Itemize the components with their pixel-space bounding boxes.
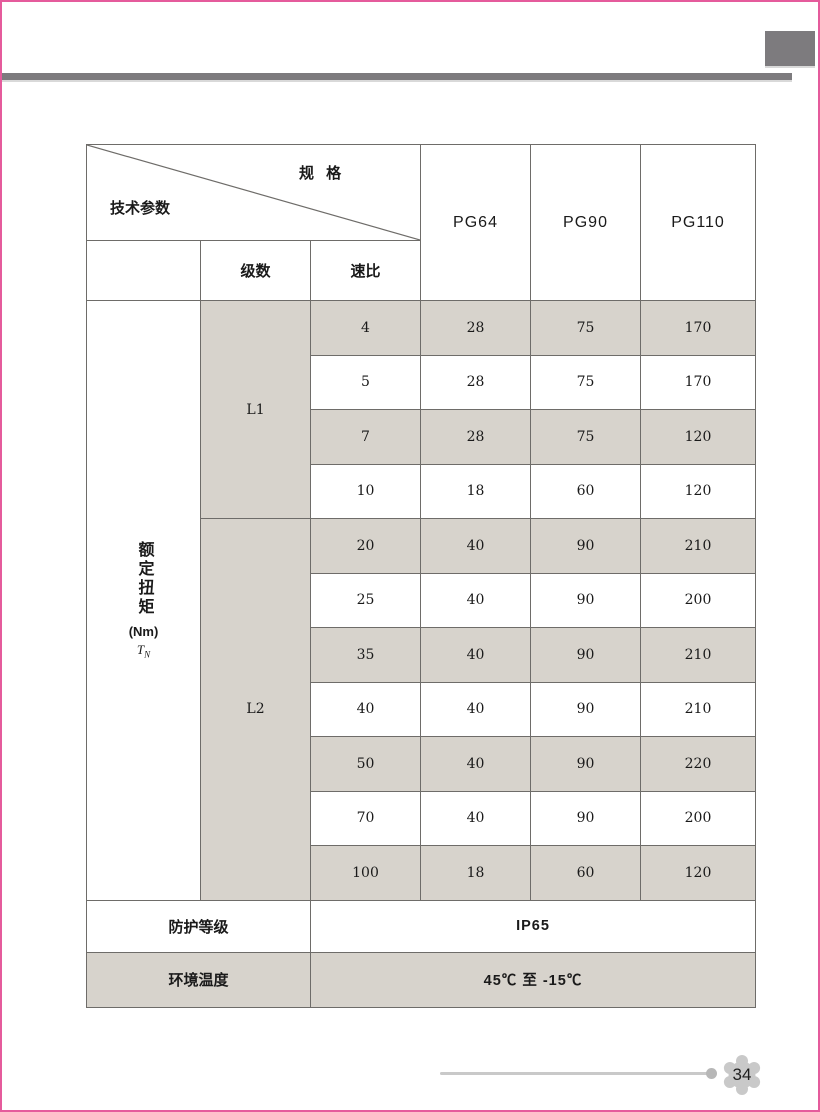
col-header-pg64: PG64 [421, 145, 531, 301]
torque-symbol: TN [87, 642, 200, 660]
header-row-1: 规 格 技术参数 PG64 PG90 PG110 [87, 145, 756, 241]
header-corner-block [765, 31, 815, 68]
cell-pg110: 200 [641, 791, 756, 846]
spec-table: 规 格 技术参数 PG64 PG90 PG110 级数 速比 额定扭矩 (Nm)… [86, 144, 756, 1008]
cell-pg64: 40 [421, 682, 531, 737]
protection-label: 防护等级 [87, 900, 311, 952]
cell-pg110: 170 [641, 301, 756, 356]
diagonal-line [87, 145, 420, 240]
cell-ratio: 70 [311, 791, 421, 846]
cell-pg64: 40 [421, 737, 531, 792]
header-rule-bar [2, 73, 792, 82]
cell-pg64: 40 [421, 628, 531, 683]
cell-pg64: 28 [421, 301, 531, 356]
cell-pg64: 40 [421, 791, 531, 846]
blank-cell [87, 241, 201, 301]
cell-pg90: 90 [531, 573, 641, 628]
cell-pg90: 90 [531, 682, 641, 737]
cell-pg64: 40 [421, 573, 531, 628]
catalog-page: 规 格 技术参数 PG64 PG90 PG110 级数 速比 额定扭矩 (Nm)… [0, 0, 820, 1112]
cell-pg110: 120 [641, 464, 756, 519]
temperature-row: 环境温度 45℃ 至 -15℃ [87, 952, 756, 1007]
cell-ratio: 5 [311, 355, 421, 410]
cell-pg90: 75 [531, 301, 641, 356]
cell-pg90: 90 [531, 791, 641, 846]
cell-pg90: 90 [531, 519, 641, 574]
cell-ratio: 100 [311, 846, 421, 901]
stage-header: 级数 [201, 241, 311, 301]
torque-unit: (Nm) [87, 624, 200, 639]
col-header-pg90: PG90 [531, 145, 641, 301]
torque-name: 额定扭矩 [136, 541, 152, 617]
cell-ratio: 4 [311, 301, 421, 356]
torque-label-cell: 额定扭矩 (Nm) TN [87, 301, 201, 901]
cell-ratio: 25 [311, 573, 421, 628]
cell-pg64: 18 [421, 846, 531, 901]
footer-dot [706, 1068, 717, 1079]
temperature-value: 45℃ 至 -15℃ [311, 952, 756, 1007]
spec-label: 规 格 [299, 162, 345, 183]
cell-pg110: 210 [641, 519, 756, 574]
cell-pg64: 18 [421, 464, 531, 519]
stage-l2: L2 [201, 519, 311, 901]
temperature-label: 环境温度 [87, 952, 311, 1007]
cell-pg110: 210 [641, 682, 756, 737]
cell-ratio: 50 [311, 737, 421, 792]
cell-pg110: 170 [641, 355, 756, 410]
cell-pg110: 210 [641, 628, 756, 683]
cell-ratio: 20 [311, 519, 421, 574]
stage-l1: L1 [201, 301, 311, 519]
cell-pg64: 28 [421, 410, 531, 465]
params-label: 技术参数 [110, 197, 170, 218]
cell-ratio: 35 [311, 628, 421, 683]
cell-pg110: 120 [641, 846, 756, 901]
cell-pg64: 28 [421, 355, 531, 410]
page-number-badge: 34 [721, 1054, 763, 1096]
cell-pg90: 75 [531, 355, 641, 410]
cell-pg90: 60 [531, 846, 641, 901]
cell-ratio: 40 [311, 682, 421, 737]
cell-pg64: 40 [421, 519, 531, 574]
cell-pg110: 200 [641, 573, 756, 628]
cell-pg90: 90 [531, 628, 641, 683]
protection-row: 防护等级 IP65 [87, 900, 756, 952]
cell-ratio: 10 [311, 464, 421, 519]
protection-value: IP65 [311, 900, 756, 952]
cell-pg90: 60 [531, 464, 641, 519]
cell-pg90: 90 [531, 737, 641, 792]
footer-rule [440, 1072, 712, 1075]
table-row: 额定扭矩 (Nm) TN L1 4 28 75 170 [87, 301, 756, 356]
cell-ratio: 7 [311, 410, 421, 465]
col-header-pg110: PG110 [641, 145, 756, 301]
cell-pg110: 120 [641, 410, 756, 465]
page-number: 34 [721, 1054, 763, 1096]
corner-cell: 规 格 技术参数 [87, 145, 421, 241]
cell-pg90: 75 [531, 410, 641, 465]
cell-pg110: 220 [641, 737, 756, 792]
ratio-header: 速比 [311, 241, 421, 301]
